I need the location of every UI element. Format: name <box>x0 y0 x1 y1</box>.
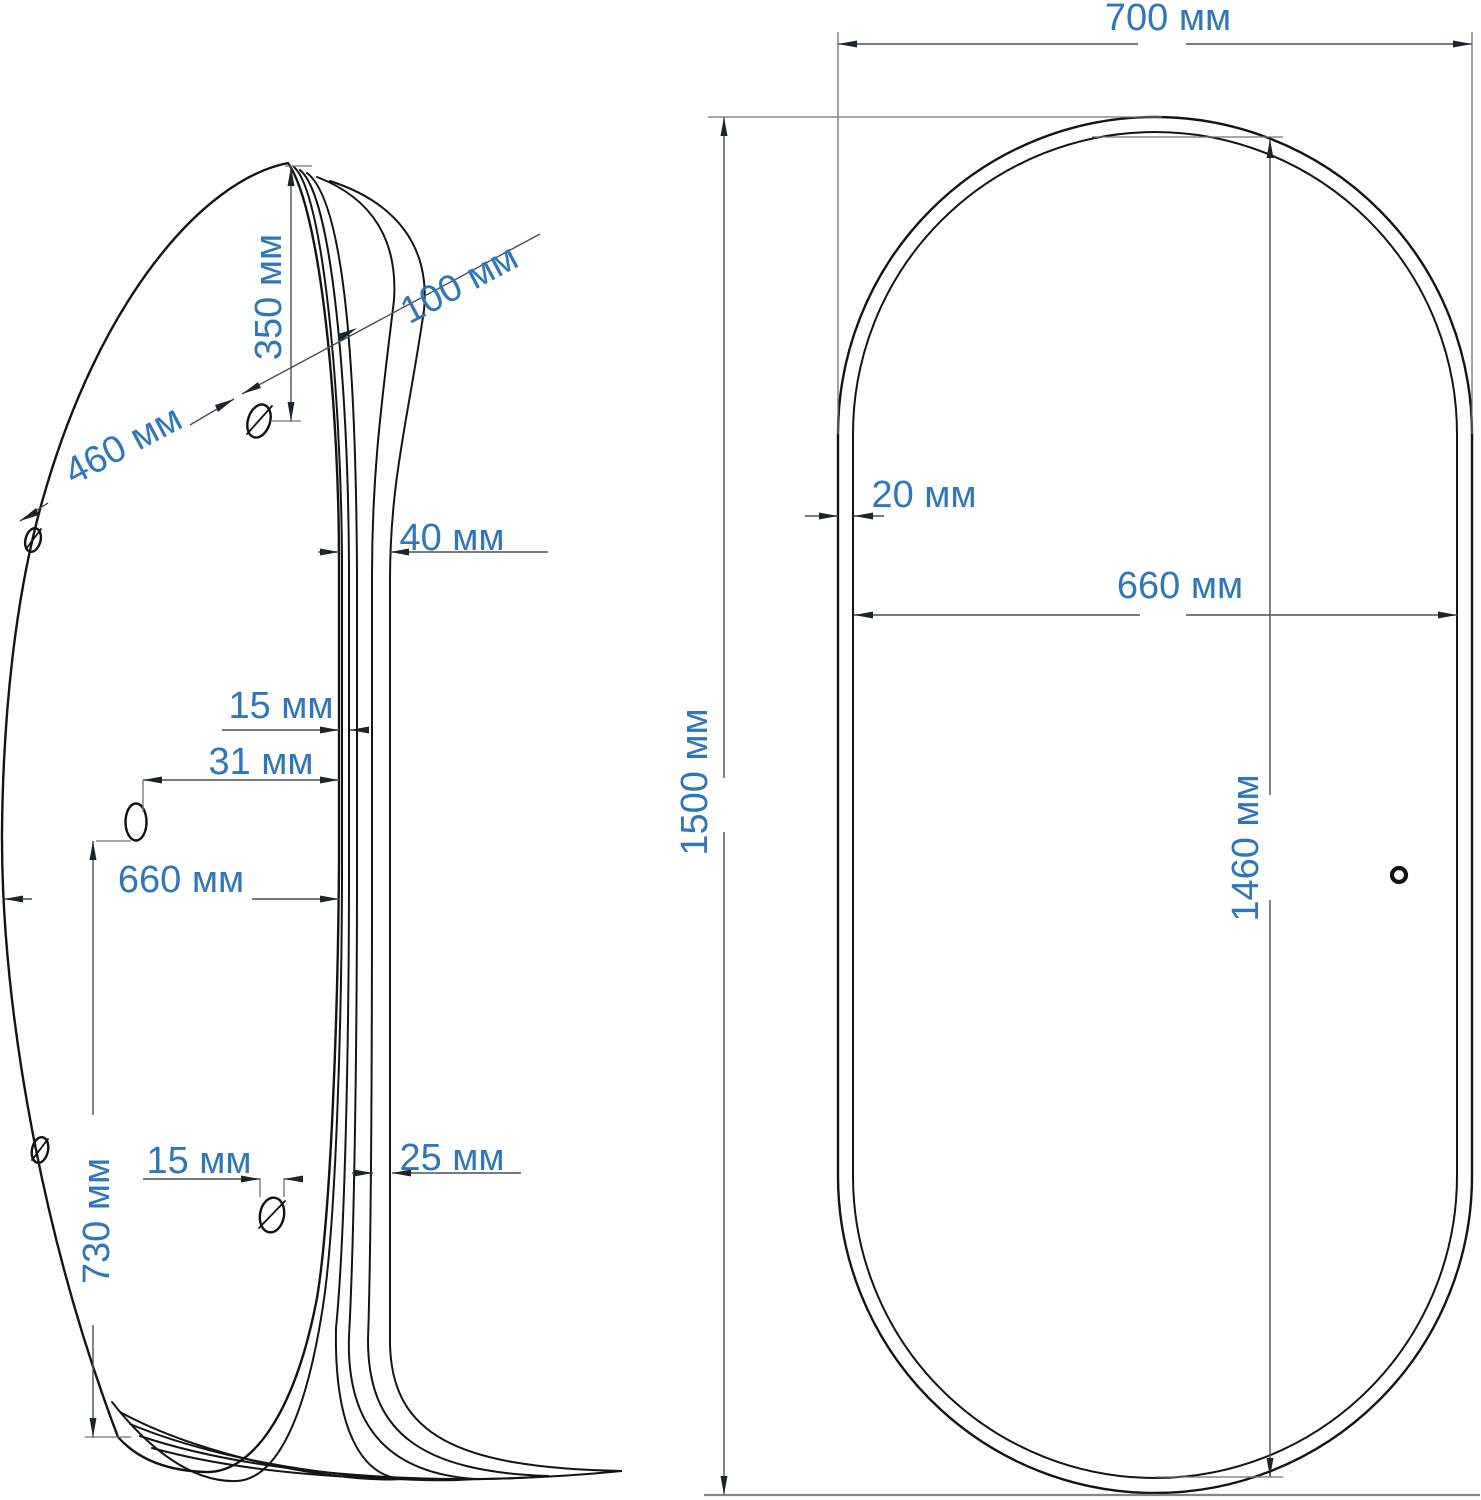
front-view-arrowheads <box>721 41 1473 1496</box>
dim-label-700: 700 мм <box>1105 0 1231 39</box>
dim-label-460: 460 мм <box>58 397 189 493</box>
sensor-circle <box>1392 868 1406 882</box>
dim-label-100: 100 мм <box>394 236 525 332</box>
dim-label-20: 20 мм <box>871 474 976 516</box>
dim-label-660-front: 660 мм <box>1117 565 1243 607</box>
front-view-inner-oval <box>853 132 1457 1478</box>
dim-label-1460: 1460 мм <box>1225 774 1267 921</box>
dim-label-31: 31 мм <box>208 741 313 783</box>
dim-label-25: 25 мм <box>399 1137 504 1179</box>
dim-label-15-bottom: 15 мм <box>146 1140 251 1182</box>
dim-label-1500: 1500 мм <box>674 708 716 855</box>
front-view-outer-oval <box>838 117 1472 1493</box>
mounting-holes <box>23 401 287 1234</box>
front-view: 700 мм 20 мм 660 мм 1500 мм 1460 мм <box>674 0 1480 1495</box>
technical-drawing-canvas: 350 мм 100 мм 460 мм 40 мм 15 мм 31 мм 6… <box>0 0 1481 1500</box>
side-view: 350 мм 100 мм 460 мм 40 мм 15 мм 31 мм 6… <box>2 163 622 1481</box>
dim-label-730: 730 мм <box>76 1158 118 1284</box>
dim-label-660-side: 660 мм <box>118 859 244 901</box>
mirror-dimensions-drawing: 350 мм 100 мм 460 мм 40 мм 15 мм 31 мм 6… <box>0 0 1481 1500</box>
front-view-dimension-lines <box>704 32 1480 1495</box>
dim-label-40: 40 мм <box>399 517 504 559</box>
dim-label-15-top: 15 мм <box>228 685 333 727</box>
dim-label-350: 350 мм <box>248 234 290 360</box>
